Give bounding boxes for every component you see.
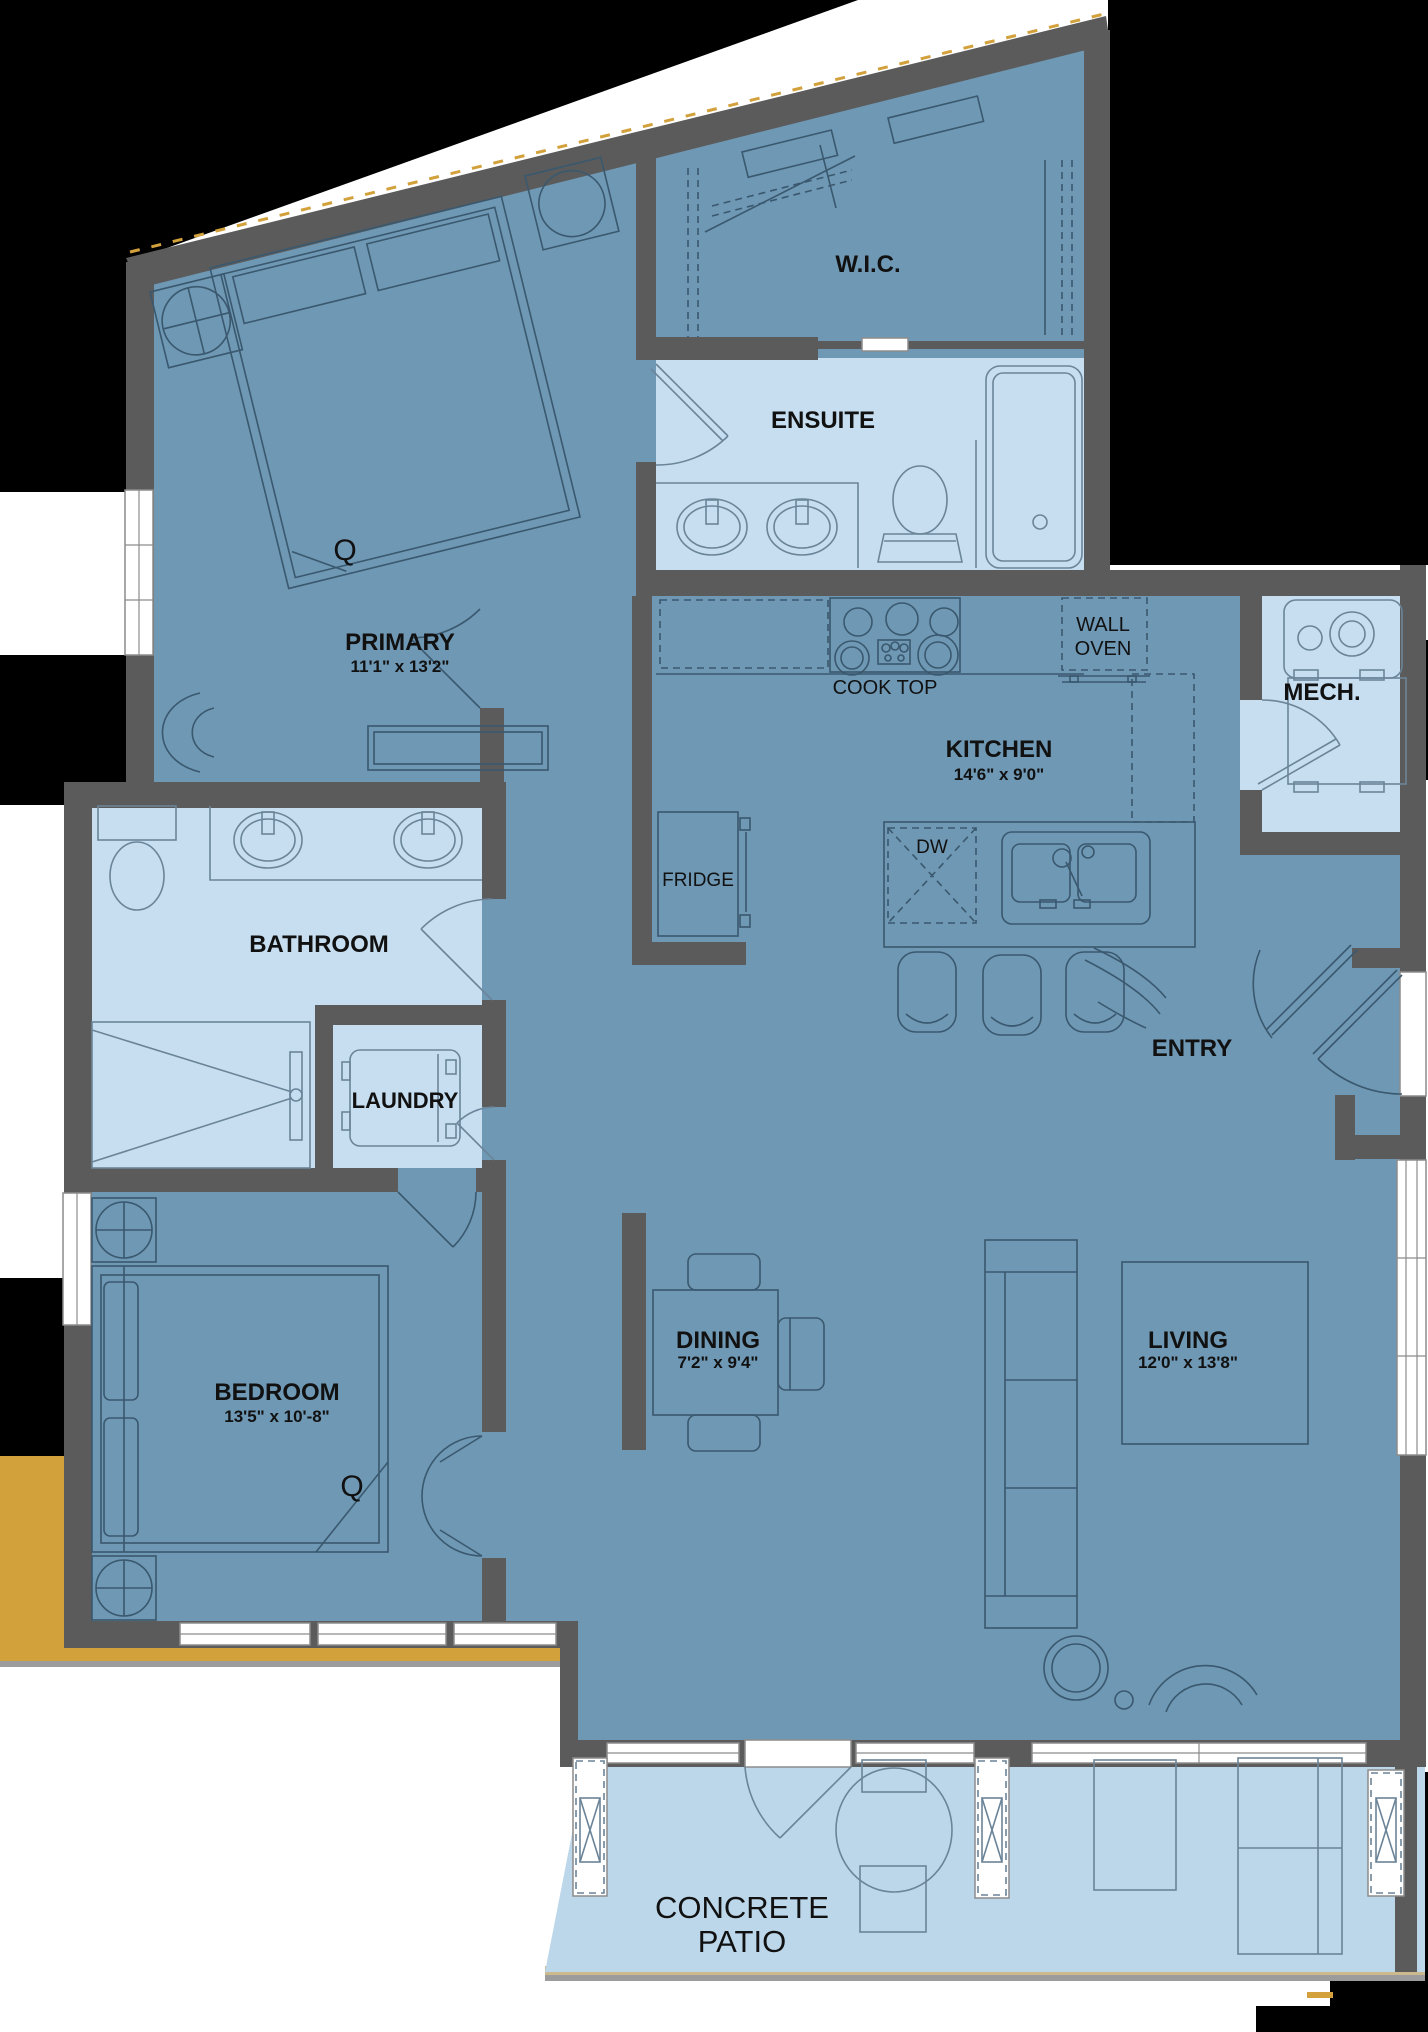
kitchen-label: KITCHEN [946, 736, 1053, 763]
kitchen-dims: 14'6" x 9'0" [954, 765, 1044, 784]
dining-label: DINING [676, 1327, 760, 1354]
cook-top-label: COOK TOP [833, 677, 938, 699]
mech-label: MECH. [1283, 679, 1360, 706]
primary-bed-size: Q [333, 534, 356, 567]
dishwasher-label: DW [916, 837, 948, 858]
wall-oven-label-line2: OVEN [1075, 638, 1132, 660]
primary-dims: 11'1" x 13'2" [351, 657, 450, 676]
dining-dims: 7'2" x 9'4" [678, 1353, 759, 1372]
floor-plan-drawing: W.I.C. ENSUITE PRIMARY 11'1" x 13'2" Q K… [0, 0, 1428, 2032]
floor-plan-page: W.I.C. ENSUITE PRIMARY 11'1" x 13'2" Q K… [0, 0, 1428, 2032]
patio-label-line2: PATIO [698, 1924, 786, 1959]
fridge-label: FRIDGE [662, 870, 734, 891]
room-mech-floor [1240, 596, 1405, 836]
entry-label: ENTRY [1152, 1035, 1232, 1062]
ensuite-label: ENSUITE [771, 407, 875, 434]
living-dims: 12'0" x 13'8" [1138, 1353, 1238, 1372]
bathroom-label: BATHROOM [249, 931, 389, 958]
wall-oven-label-line1: WALL [1076, 614, 1130, 636]
laundry-label: LAUNDRY [352, 1088, 459, 1113]
room-ensuite-floor [656, 358, 1090, 570]
bedroom-bed-size: Q [340, 1470, 363, 1503]
primary-label: PRIMARY [345, 629, 455, 656]
living-label: LIVING [1148, 1327, 1228, 1354]
bedroom-dims: 13'5" x 10'-8" [224, 1407, 330, 1426]
wic-label: W.I.C. [835, 251, 900, 278]
bedroom-label: BEDROOM [214, 1379, 339, 1406]
patio-label-line1: CONCRETE [655, 1890, 829, 1925]
